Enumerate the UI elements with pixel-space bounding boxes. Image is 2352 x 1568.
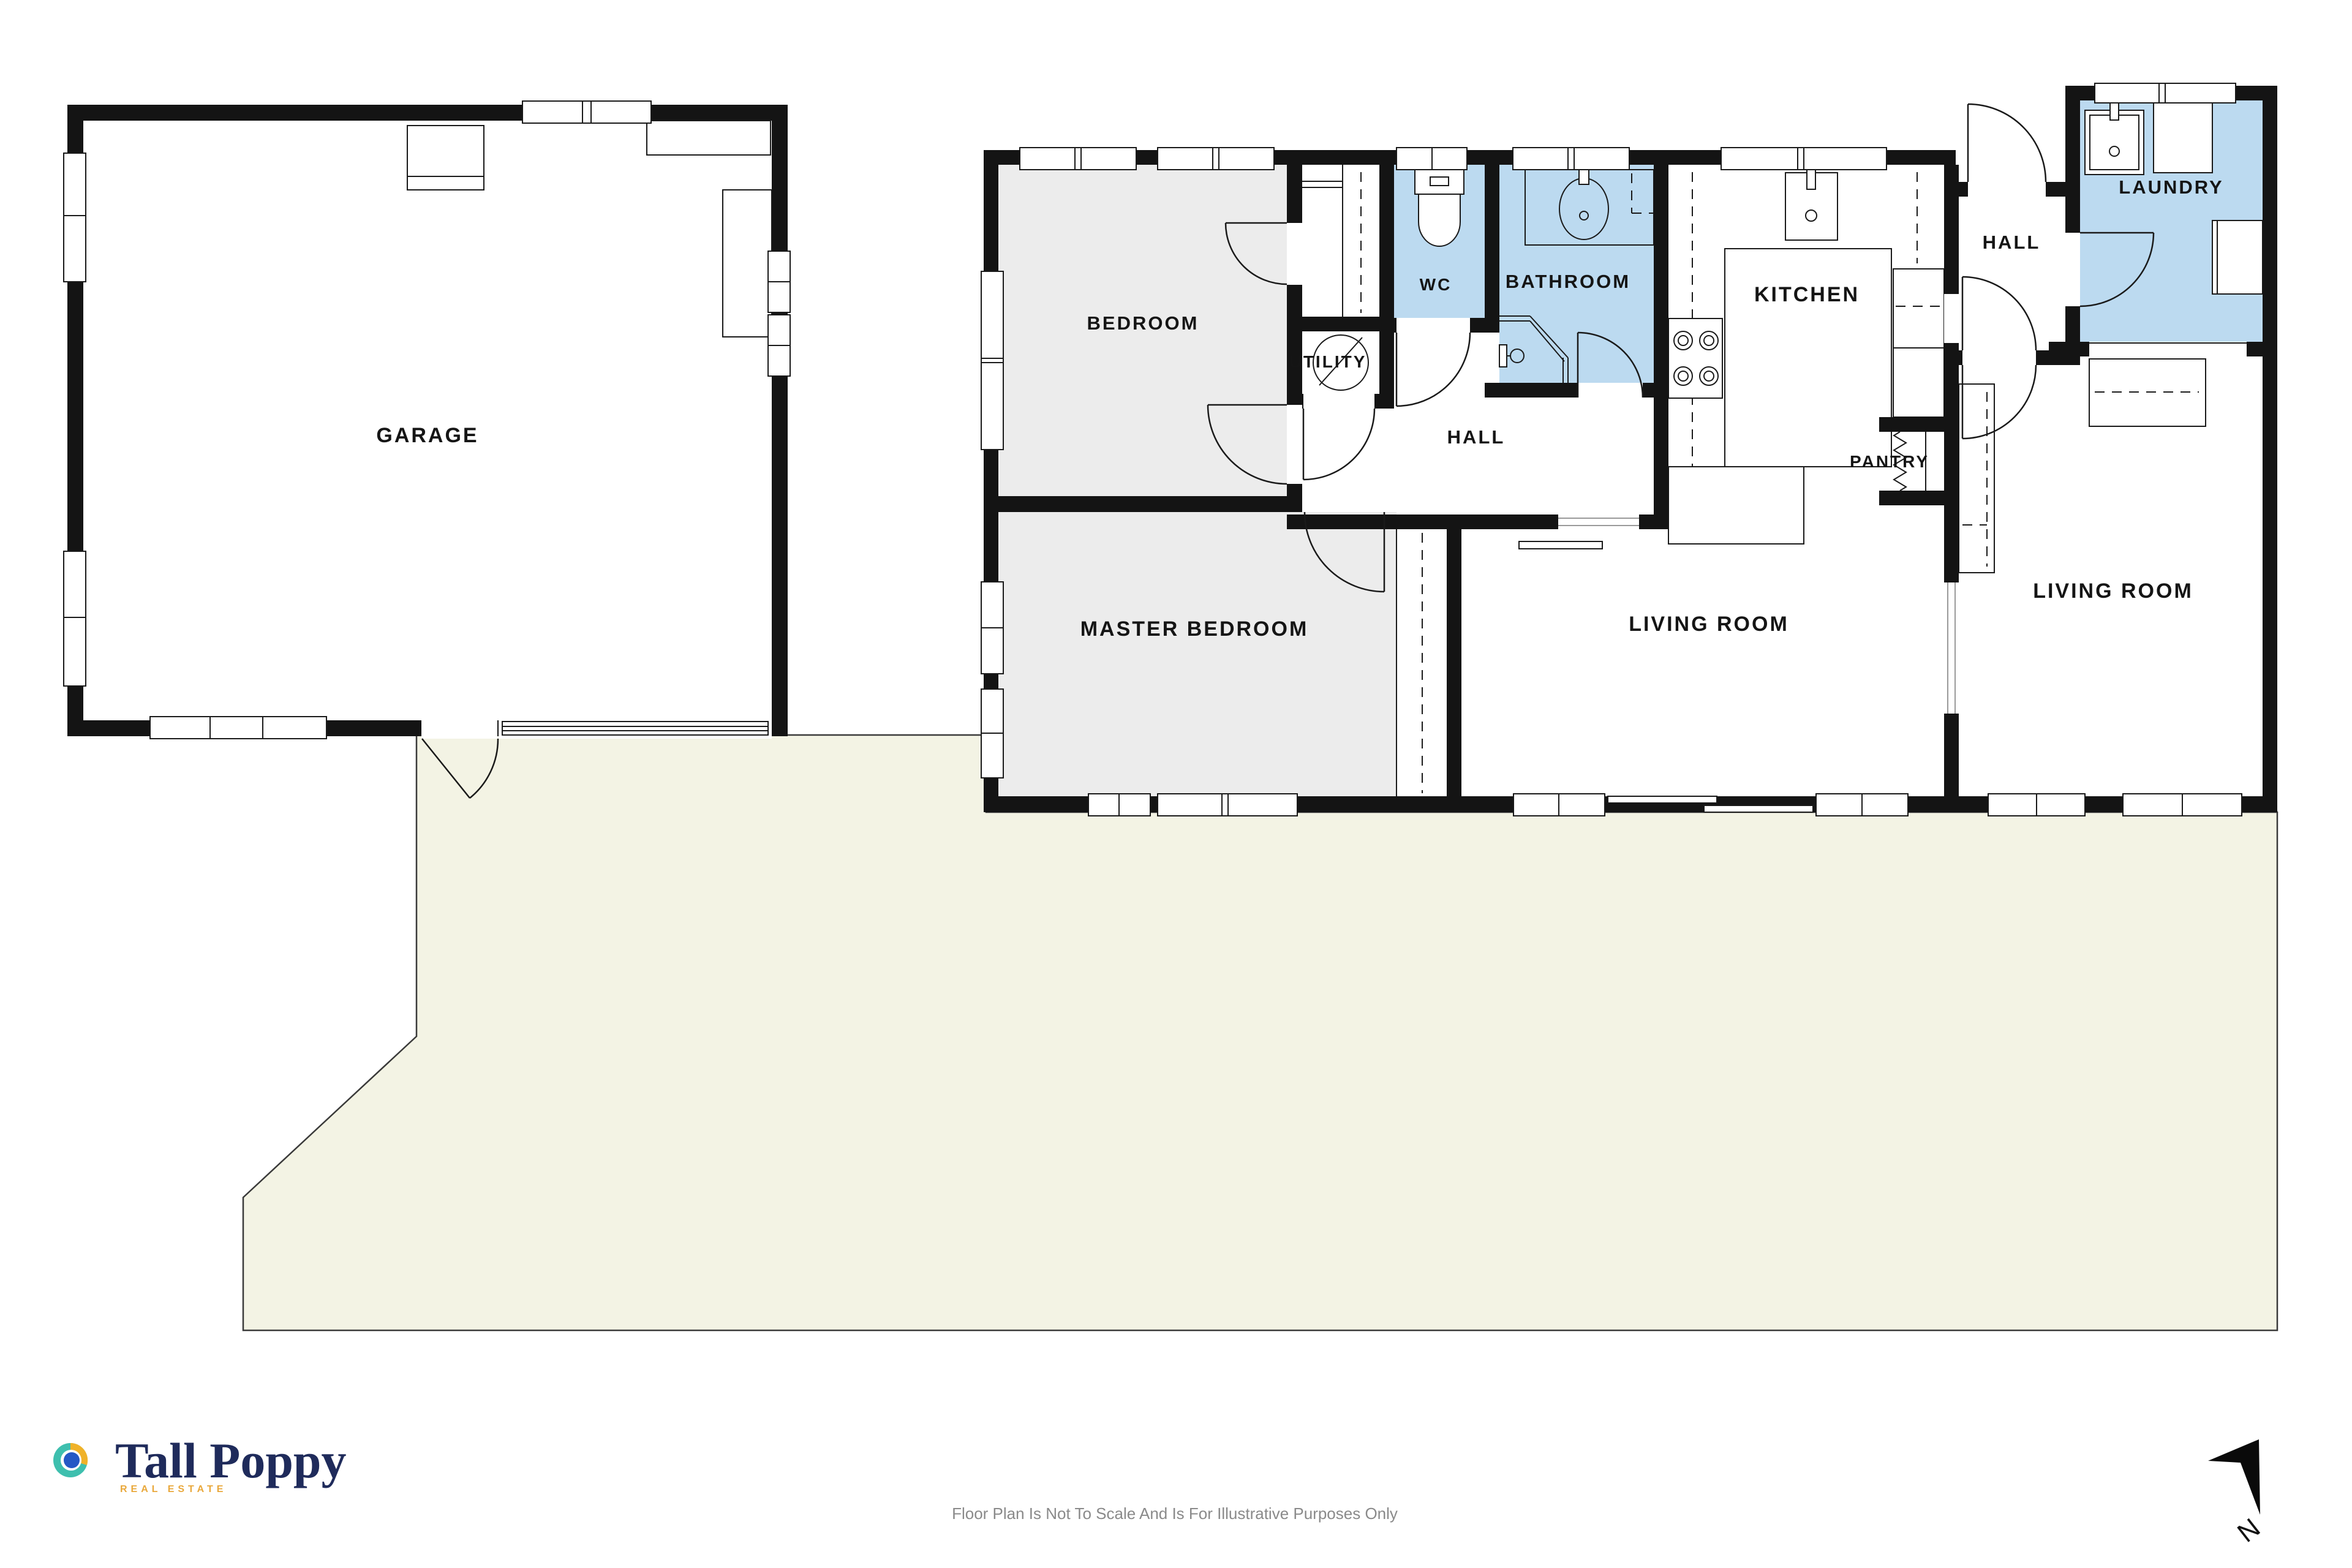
garage-shelf [647,121,771,155]
master-bedroom-label: MASTER BEDROOM [1080,617,1309,641]
wc-fixtures [1415,170,1464,246]
north-arrow-icon: N [2208,1439,2266,1548]
hall-shelf [1519,541,1602,549]
toilet-bowl [1419,194,1460,246]
wc-label: WC [1420,275,1452,294]
water-cylinder [407,126,484,190]
garage: GARAGE [64,101,790,798]
living-room-right-label: LIVING ROOM [2033,579,2193,603]
garage-floor [83,121,772,720]
kitchen-cabinet-lower [1893,348,1944,417]
hall-right-floor [1959,197,2065,350]
floorplan-canvas: GARAGE [0,0,2352,1568]
yard-area [243,735,2277,1330]
kitchen-label: KITCHEN [1754,283,1860,306]
living-rooms-opening [1944,582,1959,714]
washing-machine [2154,100,2212,173]
hall-middle-label: HALL [1447,426,1506,448]
kitchen-counter [1725,249,1891,467]
hall-right-label: HALL [1983,232,2041,253]
garage-cupboard [723,190,772,337]
garage-label: GARAGE [376,424,478,447]
toilet-flush-button [1430,177,1449,186]
laundry-label: LAUNDRY [2119,176,2223,198]
brand-name: Tall Poppy [115,1433,347,1488]
master-bedroom-floor [998,512,1396,796]
floorplan-page: GARAGE [0,0,2352,1568]
kitchen-cabinet-upper [1893,269,1944,348]
bathroom-label: BATHROOM [1506,271,1630,292]
laundry-cupboard [2212,221,2263,294]
pantry-label: PANTRY [1850,452,1929,471]
tall-cupboard [1959,384,1994,573]
kitchen-peninsula [1668,467,1804,544]
laundry-faucet-icon [2110,102,2119,120]
living-room-middle-label: LIVING ROOM [1629,612,1789,636]
stove [1668,318,1722,398]
footer: Tall Poppy REAL ESTATE Floor Plan Is Not… [53,1433,2266,1548]
garage-door [499,718,772,739]
disclaimer-text: Floor Plan Is Not To Scale And Is For Il… [952,1504,1398,1523]
bedroom-label: BEDROOM [1087,312,1199,334]
brand-logo-icon [53,1443,88,1477]
utility-label: UTILITY [1289,352,1367,371]
brand-tagline: REAL ESTATE [120,1484,227,1494]
north-label: N [2232,1513,2266,1548]
